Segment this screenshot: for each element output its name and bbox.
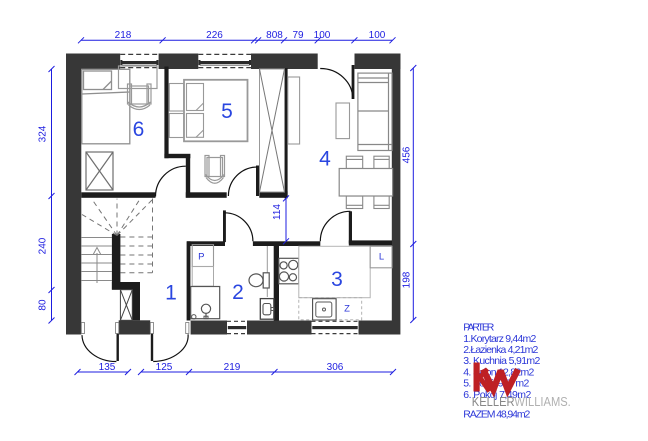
svg-text:324: 324	[38, 125, 49, 142]
svg-text:KELLERWILLIAMS.: KELLERWILLIAMS.	[472, 395, 571, 409]
svg-text:PARTER: PARTER	[463, 322, 494, 334]
svg-text:306: 306	[327, 362, 344, 373]
svg-text:456: 456	[402, 146, 413, 163]
svg-text:79: 79	[292, 30, 304, 41]
svg-text:240: 240	[38, 237, 49, 254]
svg-text:100: 100	[369, 30, 386, 41]
svg-text:3: 3	[331, 268, 343, 291]
svg-text:Z: Z	[344, 304, 350, 315]
svg-text:2: 2	[232, 281, 244, 304]
svg-text:1.Korytarz 9,44m2: 1.Korytarz 9,44m2	[463, 333, 536, 345]
svg-text:226: 226	[206, 30, 223, 41]
svg-text:2.Łazienka 4,21m2: 2.Łazienka 4,21m2	[463, 344, 538, 356]
svg-text:219: 219	[224, 362, 241, 373]
svg-text:80: 80	[38, 299, 49, 311]
svg-text:808: 808	[266, 30, 283, 41]
svg-text:135: 135	[99, 362, 116, 373]
svg-text:5: 5	[221, 100, 233, 123]
svg-text:P: P	[198, 252, 204, 263]
svg-text:100: 100	[314, 30, 331, 41]
svg-text:218: 218	[115, 30, 132, 41]
svg-text:198: 198	[402, 271, 413, 288]
svg-text:L: L	[379, 252, 384, 263]
svg-text:4: 4	[319, 148, 331, 171]
svg-text:1: 1	[165, 282, 177, 305]
svg-text:6: 6	[133, 118, 145, 141]
svg-text:RAZEM 48,94m2: RAZEM 48,94m2	[463, 408, 530, 420]
svg-text:114: 114	[272, 204, 283, 220]
svg-text:125: 125	[156, 362, 173, 373]
